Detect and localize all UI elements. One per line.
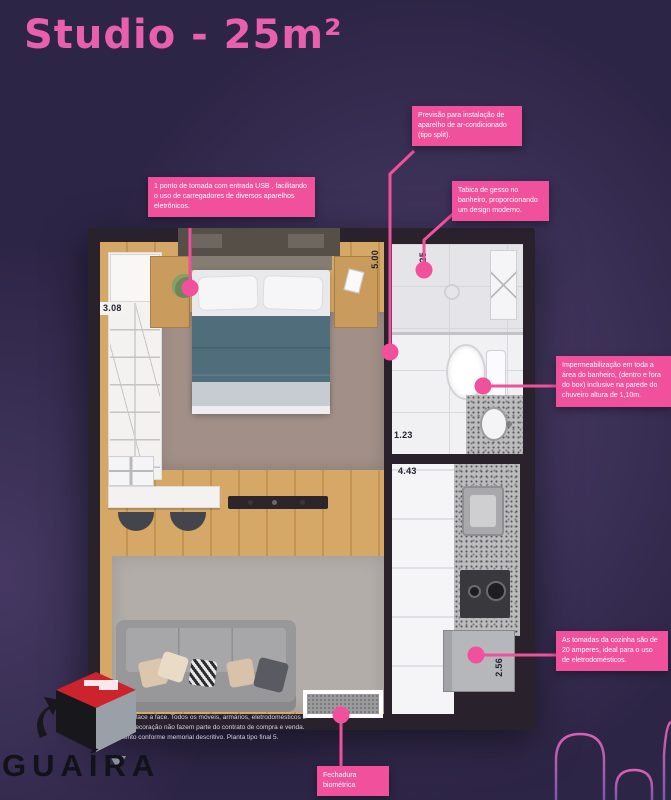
bar-counter [108,486,220,508]
floor-plan: 3.08 5.00 [88,228,535,730]
kitchen-counter [454,464,520,636]
callout-waterproof: Impermeabilização em toda a área do banh… [556,356,671,407]
refrigerator [443,630,515,692]
dim-bathroom-b: 1.23 [394,430,413,440]
dim-closet: 3.08 [100,302,125,315]
callout-usb: 1 ponto de tomada com entrada USB , faci… [148,177,315,217]
bathroom-sink-counter [466,395,523,454]
sofa-throw [253,657,289,693]
brand-name: GUAÍRA [2,748,160,784]
callout-gesso: Tabica de gesso no banheiro, proporciona… [452,181,549,221]
bathroom-basin [480,407,508,441]
shelf-decor [248,500,253,505]
callout-outlets: As tomadas da cozinha são de 20 amperes,… [556,631,668,671]
dim-kitchen: 4.43 [398,466,417,476]
shelf-decor [272,500,277,505]
arch-decoration-icon [540,700,671,800]
headboard-shelf [178,228,340,256]
shelf-item [192,234,222,248]
faucet [506,421,512,427]
callout-lock: Fechadura biométrica [317,766,389,796]
tv-shelf [228,496,328,509]
entry-doormat [303,690,383,718]
bed-pillow [197,275,258,311]
bathroom [392,244,523,454]
shelf-item [288,234,324,248]
page-title: Studio - 25m² [24,12,343,58]
bed-pillow [262,275,323,311]
bed-foot [192,406,330,414]
callout-ac: Previsão para instalação de aparelho de … [412,106,522,146]
side-table [108,456,154,486]
sofa-pillow [226,658,256,688]
shower-drain [444,284,460,300]
kitchen-sink [462,486,504,536]
burner [468,585,481,598]
bed [192,270,330,414]
flyer-canvas: Studio - 25m² 3.08 5.00 [0,0,671,800]
dim-bathroom: 2.25 [418,252,428,271]
cooktop [460,570,510,618]
bed-folded-blanket [192,382,330,406]
toilet [446,344,486,400]
bed-headboard [186,256,332,270]
shower-glass [392,332,523,335]
wardrobe-rails [110,303,160,478]
shelf-decor [300,500,305,505]
dim-fridge: 2.56 [494,658,504,677]
kitchen-sink-basin [470,495,496,527]
toilet-tank [486,350,506,398]
burner [486,581,506,601]
bathroom-cabinet [490,250,517,320]
dim-bedroom: 5.00 [370,250,380,269]
